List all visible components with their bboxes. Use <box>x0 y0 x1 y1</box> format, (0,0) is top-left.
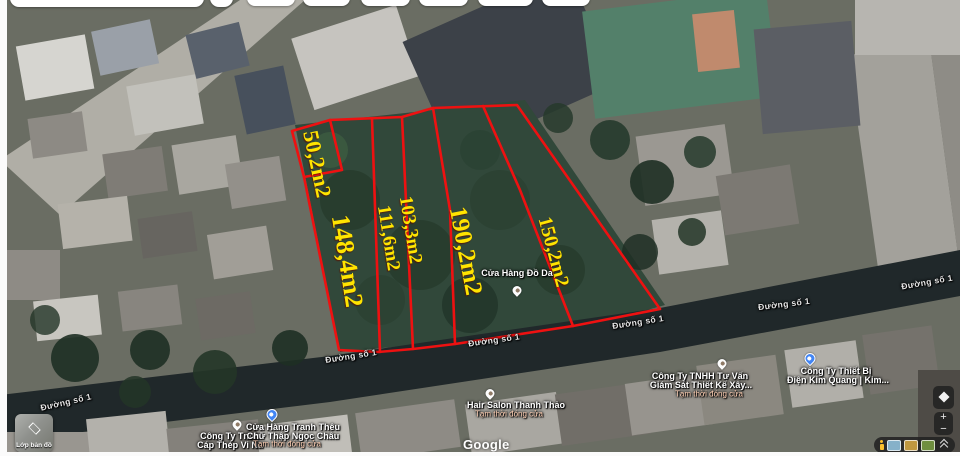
map-canvas[interactable]: 50,2m2 148,4m2 111,6m2 103,3m2 190,2m2 1… <box>0 0 960 456</box>
category-chip[interactable] <box>478 0 533 6</box>
divider-190-150 <box>483 106 573 326</box>
compass-icon <box>938 391 949 402</box>
imagery-thumbnail[interactable] <box>887 440 901 451</box>
layers-button-label: Lớp bản đồ <box>15 442 53 449</box>
poi-label[interactable]: Giám Sát Thiết Kế Xây... <box>650 380 752 390</box>
poi-status: Tạm thời đóng cửa <box>475 410 543 419</box>
google-watermark: Google <box>463 437 510 452</box>
imagery-dock <box>874 437 955 453</box>
poi-label[interactable]: Hair Salon Thanh Thảo <box>467 400 565 410</box>
chevron-up-icon[interactable] <box>940 440 949 450</box>
poi-label[interactable]: Cửa Hàng Đồ Da <box>481 268 553 278</box>
zoom-out-button[interactable]: − <box>934 424 953 435</box>
poi-label[interactable]: Điện Kim Quang | Kim... <box>787 375 889 385</box>
category-chip[interactable] <box>542 0 590 6</box>
search-bar[interactable] <box>10 0 204 7</box>
zoom-control: + − <box>934 412 953 435</box>
category-chip[interactable] <box>361 0 410 6</box>
zoom-in-button[interactable]: + <box>934 412 953 423</box>
pegman-icon[interactable] <box>879 440 884 450</box>
bottom-margin <box>0 452 960 456</box>
layers-icon <box>28 422 40 434</box>
category-chip[interactable] <box>247 0 295 6</box>
poi-status: Tạm thời đóng cửa <box>675 390 743 399</box>
imagery-thumbnail[interactable] <box>904 440 918 451</box>
left-margin <box>0 0 7 456</box>
category-chip[interactable] <box>419 0 468 6</box>
category-chip[interactable] <box>303 0 350 6</box>
parcel-overlay <box>0 0 960 456</box>
imagery-thumbnail[interactable] <box>921 440 935 451</box>
compass-button[interactable] <box>933 386 954 409</box>
poi-status: Tạm thời đóng cửa <box>253 440 321 449</box>
layers-button[interactable]: Lớp bản đồ <box>15 414 53 452</box>
